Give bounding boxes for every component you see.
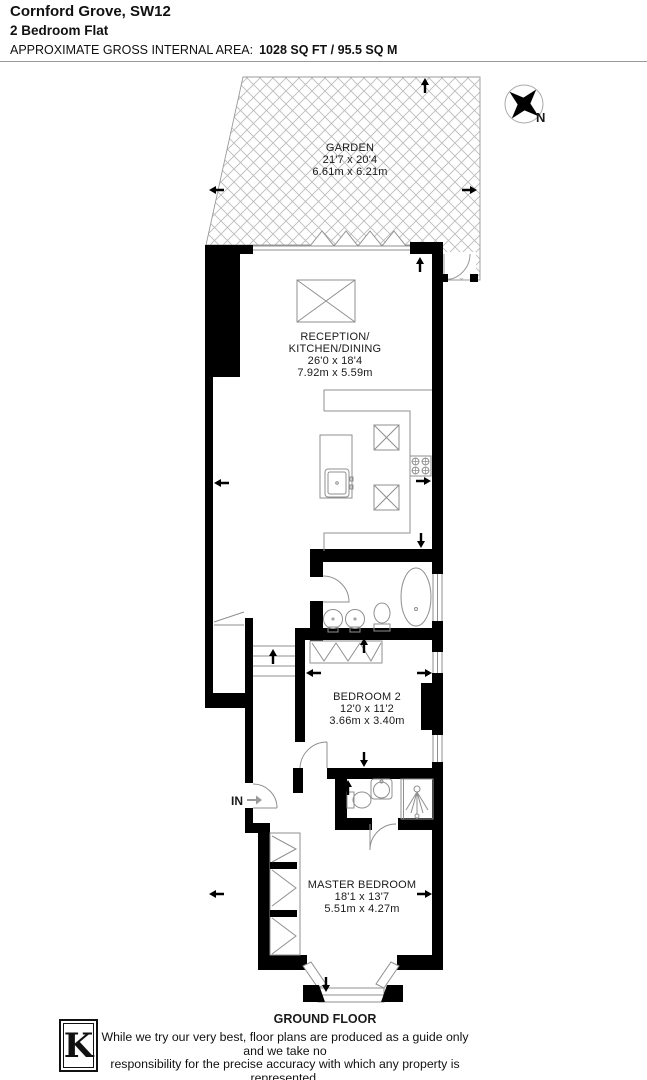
chimney-breast	[421, 683, 443, 730]
entrance-arrow-icon	[256, 796, 262, 805]
garden-name: GARDEN	[326, 142, 374, 154]
kitchen-fixtures	[297, 280, 432, 551]
toilet	[374, 603, 390, 631]
bedroom2-dims-m: 3.66m x 3.40m	[329, 715, 404, 727]
garden-dims-ft: 21'7 x 20'4	[323, 154, 378, 166]
bathroom-window	[432, 574, 443, 621]
agency-logo-letter: K	[63, 1023, 94, 1068]
bay-window	[303, 962, 403, 1002]
entrance-marker: IN	[231, 794, 262, 808]
disclaimer: While we try our very best, floor plans …	[100, 1031, 470, 1080]
bathroom-door	[323, 576, 349, 602]
bathtub	[401, 568, 431, 626]
bedroom2-dims-ft: 12'0 x 11'2	[340, 703, 394, 715]
hob	[410, 456, 431, 476]
kitchen-island	[320, 435, 353, 498]
compass: N	[497, 77, 551, 131]
basin	[371, 779, 392, 799]
disclaimer-line-2: responsibility for the precise accuracy …	[100, 1058, 470, 1080]
appliance-unit-2	[374, 485, 399, 510]
reception-dims-m: 7.92m x 5.59m	[297, 367, 372, 379]
bedroom2-window-2	[432, 735, 443, 762]
master-bedroom-name: MASTER BEDROOM	[308, 879, 417, 891]
master-bedroom-dims-m: 5.51m x 4.27m	[324, 903, 399, 915]
bedroom2-window-1	[432, 652, 443, 673]
shower	[401, 779, 433, 819]
floorplan-drawing: N GARDEN 21'7 x 20'4 6.61m x 6.21m RECEP…	[0, 0, 647, 1080]
skylight	[297, 280, 355, 322]
disclaimer-line-1: While we try our very best, floor plans …	[100, 1031, 470, 1058]
shower-room-door	[370, 824, 396, 850]
reception-dims-ft: 26'0 x 18'4	[308, 355, 363, 367]
bathroom-fixtures	[324, 568, 432, 632]
compass-north-label: N	[536, 110, 545, 125]
bedroom2-door	[300, 742, 327, 768]
glazed-doors-line	[253, 246, 410, 250]
master-wardrobe	[270, 833, 300, 955]
understairs-cupboard	[214, 612, 244, 625]
appliance-unit-1	[374, 425, 399, 450]
agency-logo: K	[59, 1019, 98, 1072]
reception-name-1: RECEPTION/	[300, 331, 370, 343]
bedroom2-name: BEDROOM 2	[333, 691, 401, 703]
entrance-label: IN	[231, 794, 243, 808]
reception-name-2: KITCHEN/DINING	[289, 343, 382, 355]
bedroom2-wardrobe	[310, 641, 382, 663]
shower-room-fixtures	[347, 779, 433, 819]
garden-dims-m: 6.61m x 6.21m	[312, 166, 387, 178]
floorplan-page: Cornford Grove, SW12 2 Bedroom Flat APPR…	[0, 0, 647, 1080]
toilet	[347, 792, 371, 808]
master-bedroom-dims-ft: 18'1 x 13'7	[335, 891, 390, 903]
floor-label: GROUND FLOOR	[274, 1012, 377, 1026]
